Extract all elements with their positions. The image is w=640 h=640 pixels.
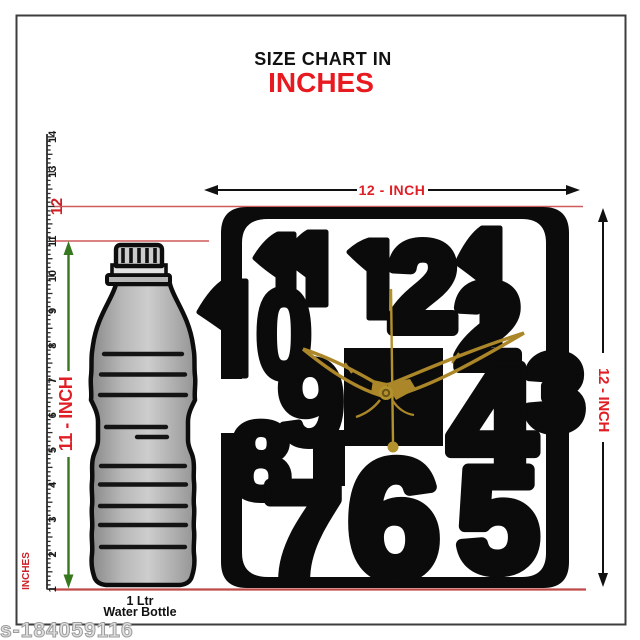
svg-text:3: 3: [47, 517, 59, 523]
svg-text:1: 1: [47, 586, 59, 592]
svg-text:12 - INCH: 12 - INCH: [359, 182, 426, 198]
svg-text:10: 10: [47, 270, 59, 282]
svg-text:INCHES: INCHES: [268, 67, 374, 98]
svg-text:Water Bottle: Water Bottle: [103, 605, 176, 619]
svg-text:11: 11: [47, 235, 59, 247]
svg-text:INCHES: INCHES: [21, 552, 32, 590]
svg-text:4: 4: [47, 481, 59, 488]
svg-text:2: 2: [47, 551, 59, 557]
svg-text:5: 5: [457, 438, 538, 601]
svg-text:7: 7: [264, 454, 342, 611]
svg-text:13: 13: [47, 166, 59, 178]
svg-text:8: 8: [47, 343, 59, 349]
svg-text:12 - INCH: 12 - INCH: [595, 368, 612, 432]
svg-text:6: 6: [348, 427, 440, 611]
svg-text:SIZE CHART IN: SIZE CHART IN: [254, 49, 392, 69]
svg-text:11 - INCH: 11 - INCH: [56, 377, 76, 452]
svg-text:9: 9: [47, 308, 59, 314]
svg-text:2: 2: [389, 219, 458, 357]
svg-text:s-184059116: s-184059116: [0, 619, 134, 640]
svg-text:14: 14: [47, 130, 59, 143]
svg-text:12: 12: [49, 198, 66, 215]
